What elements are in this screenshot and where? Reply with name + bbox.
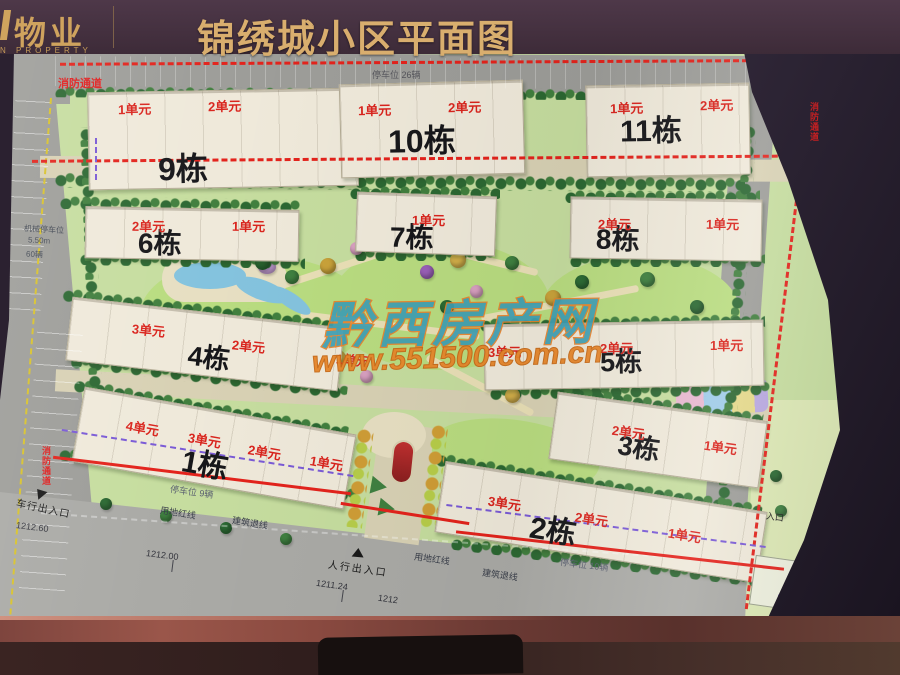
unit-label: 1单元 xyxy=(118,99,152,119)
unit-label: 2单元 xyxy=(700,95,734,115)
unit-label: 1单元 xyxy=(706,214,740,234)
building-6 xyxy=(85,206,300,262)
dark-stool xyxy=(318,634,524,675)
entrance-bed xyxy=(370,476,389,497)
unit-label: 2单元 xyxy=(231,334,266,356)
tree xyxy=(770,470,782,482)
pedestrian-entrance-arrow xyxy=(352,547,365,557)
unit-label: 1单元 xyxy=(412,210,446,230)
tree xyxy=(100,498,112,510)
tree xyxy=(420,265,434,279)
board-header: 物业 N PROPERTY 锦绣城小区平面图 xyxy=(0,0,900,54)
fire-lane-label-right: 消防通道 xyxy=(808,102,821,142)
plan-title: 锦绣城小区平面图 xyxy=(197,8,517,63)
building-4-label: 4栋 xyxy=(186,334,232,378)
building-10-label: 10栋 xyxy=(388,115,456,162)
unit-label: 1单元 xyxy=(610,98,644,118)
tree xyxy=(320,258,336,274)
property-logo-en: N PROPERTY xyxy=(0,46,92,55)
unit-label: 1单元 xyxy=(358,100,392,120)
tree xyxy=(640,272,655,287)
mech-parking-label: 机械停车位 xyxy=(24,223,65,236)
logo-divider xyxy=(113,6,114,48)
site-plan-board-photo: 9栋 10栋 11栋 6栋 7栋 8栋 4栋 5栋 3栋 1栋 2栋 1单元 2… xyxy=(0,0,900,675)
mech-parking-count: 60辆 xyxy=(26,249,43,261)
tree xyxy=(285,270,299,284)
tree xyxy=(505,256,519,270)
unit-label: 2单元 xyxy=(448,97,482,117)
unit-label: 2单元 xyxy=(132,216,166,236)
fire-lane-label: 消防通道 xyxy=(40,446,53,486)
tree xyxy=(690,300,704,314)
property-logo-icon xyxy=(0,10,11,40)
unit-label: 3单元 xyxy=(131,318,166,340)
fire-lane-label: 消防通道 xyxy=(58,75,102,91)
unit-label: 2单元 xyxy=(600,338,633,357)
unit-label: 2单元 xyxy=(208,96,242,116)
building-9-label: 9栋 xyxy=(158,144,209,191)
mech-parking-size: 5.50m xyxy=(28,235,51,245)
parking-top-label: 停车位 26辆 xyxy=(372,68,421,81)
table-and-floor xyxy=(0,616,900,675)
entrance-label: 入口 xyxy=(765,509,785,524)
unit-label: 1单元 xyxy=(232,216,266,236)
unit-label: 2单元 xyxy=(598,214,632,234)
tree xyxy=(505,388,520,403)
tree xyxy=(280,533,292,545)
building-2-label: 2栋 xyxy=(527,503,580,554)
table-edge-highlight xyxy=(0,616,560,620)
setback-line-vertical xyxy=(95,138,97,180)
unit-label: 1单元 xyxy=(710,335,743,354)
